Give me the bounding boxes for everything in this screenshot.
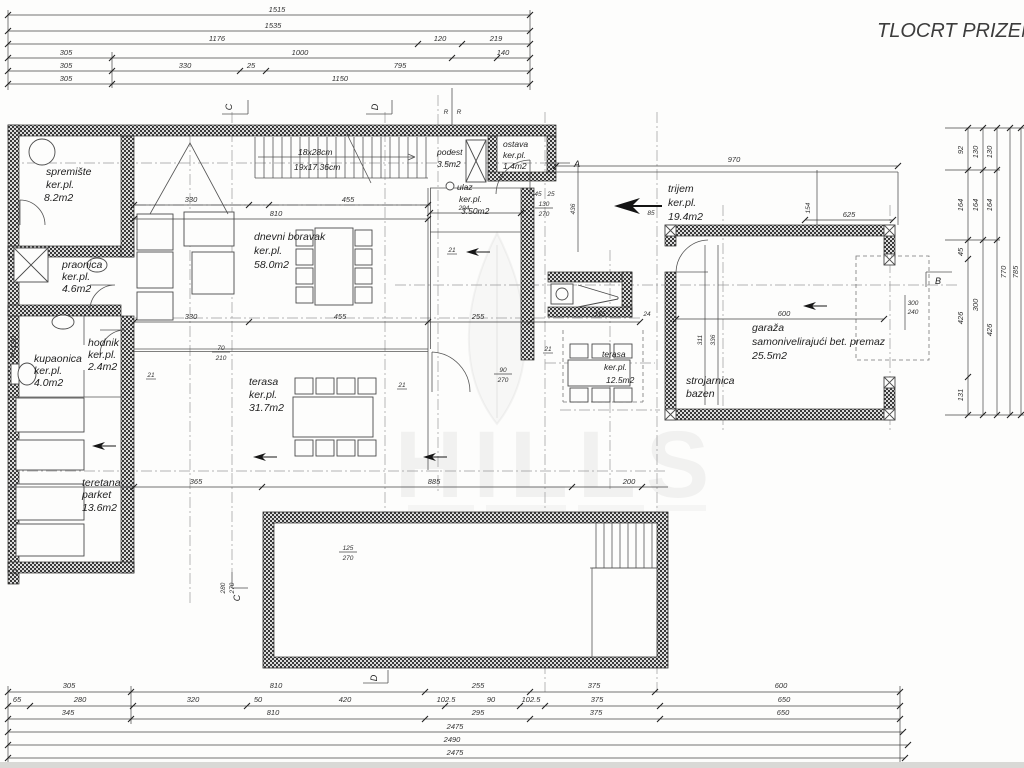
svg-text:trijem: trijem (668, 183, 694, 195)
svg-text:ostava: ostava (503, 139, 528, 149)
room-ostava: ostava ker.pl. 1.4m2 (503, 139, 528, 171)
section-marker-c-top: C (224, 103, 234, 110)
svg-text:hodnik: hodnik (88, 337, 120, 349)
dim-label: 280 (220, 582, 227, 594)
room-podest: podest 3.5m2 (436, 147, 463, 169)
svg-text:4.0m2: 4.0m2 (34, 377, 63, 389)
svg-text:25.5m2: 25.5m2 (751, 350, 787, 362)
svg-text:garaža: garaža (752, 322, 784, 334)
entrance-arrow-icon (614, 198, 662, 214)
dim-label: 24 (642, 311, 651, 318)
svg-text:kupaonica: kupaonica (34, 353, 82, 365)
dim-label: 25 (546, 191, 555, 198)
dim-label: 130 (985, 145, 994, 158)
svg-text:ker.pl.: ker.pl. (46, 179, 74, 191)
dim-label: 305 (60, 74, 73, 83)
svg-text:podest: podest (436, 147, 463, 157)
dim-label: 70 (217, 345, 225, 352)
dim-label: 164 (985, 199, 994, 212)
svg-text:dnevni boravak: dnevni boravak (254, 231, 326, 243)
dim-label: 21 (146, 372, 155, 379)
dim-label: 365 (190, 477, 203, 486)
dim-label: 305 (60, 61, 73, 70)
dim-label: 426 (985, 323, 994, 336)
dim-label: 270 (342, 555, 354, 562)
svg-text:ker.pl.: ker.pl. (254, 245, 282, 257)
dim-label: 300 (908, 300, 919, 307)
room-spremiste: spremište ker.pl. 8.2m2 (44, 166, 92, 204)
stairs-spec-line1: 18x28cm (298, 147, 333, 157)
dim-label: 255 (471, 312, 485, 321)
dim-label: 375 (588, 681, 601, 690)
dim-label: 330 (185, 312, 198, 321)
svg-text:ker.pl.: ker.pl. (604, 362, 627, 372)
door-arc-garaza (676, 240, 708, 272)
dim-label: 130 (971, 145, 980, 158)
dim-label: 300 (971, 298, 980, 311)
dim-label: 2475 (446, 748, 465, 757)
dim-label: 1176 (209, 34, 226, 43)
ridge-marker-right: R (457, 109, 462, 116)
svg-text:2.4m2: 2.4m2 (87, 361, 117, 373)
dim-label: 255 (471, 681, 485, 690)
ridge-marker-left: R (444, 109, 449, 116)
section-marker-a: A (573, 159, 580, 169)
svg-text:13.6m2: 13.6m2 (82, 502, 117, 514)
dim-label: 25 (246, 61, 256, 70)
svg-text:ker.pl.: ker.pl. (249, 389, 277, 401)
dim-label: 1000 (292, 48, 310, 57)
dim-label: 295 (471, 708, 485, 717)
parapet-marker: P=190 (9, 335, 18, 358)
podest-void-cross (466, 140, 486, 182)
dim-label: 885 (428, 477, 441, 486)
room-garaza: garaža samonivelirajući bet. premaz 25.5… (751, 322, 886, 362)
dim-label: 436 (570, 203, 577, 214)
dim-label: 102.5 (437, 695, 457, 704)
dim-label: 45 (534, 191, 542, 198)
watermark-tagline (408, 505, 706, 511)
terrace-table-set (293, 378, 376, 456)
section-marker-d-top: D (370, 103, 380, 110)
dim-label: 330 (179, 61, 192, 70)
dim-label: 375 (591, 695, 604, 704)
dim-label: 154 (805, 202, 812, 213)
dim-label: 345 (62, 708, 75, 717)
svg-text:praonica: praonica (61, 259, 102, 271)
dim-label: 330 (185, 195, 198, 204)
svg-text:4.6m2: 4.6m2 (62, 283, 91, 295)
dim-label: 140 (497, 48, 510, 57)
dim-label: 1150 (332, 74, 349, 83)
dim-label: 2490 (443, 735, 462, 744)
dim-label: 785 (1011, 265, 1020, 278)
dim-label: 426 (956, 311, 965, 324)
svg-text:ker.pl.: ker.pl. (459, 194, 482, 204)
dim-label: 130 (539, 201, 550, 208)
dim-label: 455 (334, 312, 347, 321)
dimension-chain-top: 1515 1535 1176 120 219 305 1000 140 305 … (5, 5, 533, 90)
dim-label: 1535 (265, 21, 283, 30)
washing-machine-icon (14, 248, 48, 282)
svg-text:terasa: terasa (602, 349, 626, 359)
svg-text:samonivelirajući bet. premaz: samonivelirajući bet. premaz (752, 336, 886, 348)
dim-label: 92 (956, 145, 965, 154)
svg-text:ker.pl.: ker.pl. (503, 150, 526, 160)
room-terasa-velika: terasa ker.pl. 31.7m2 (249, 376, 284, 414)
storage-tank-icon (29, 139, 55, 165)
svg-text:ker.pl.: ker.pl. (668, 197, 696, 209)
stairs-spec-line2: 19x17.36cm (294, 162, 340, 172)
dim-label: 810 (270, 681, 283, 690)
dim-label: 320 (187, 695, 200, 704)
dim-label: 650 (777, 708, 790, 717)
dimension-chain-right: 92 164 45 426 131 130 164 300 130 164 42… (945, 125, 1024, 418)
dim-label: 294 (458, 205, 470, 212)
dim-label: 90 (499, 367, 507, 374)
room-praonica: praonica ker.pl. 4.6m2 (61, 259, 102, 295)
svg-text:terasa: terasa (249, 376, 278, 388)
room-hodnik: hodnik ker.pl. 2.4m2 (87, 337, 120, 373)
dim-label: 210 (215, 355, 227, 362)
outdoor-kitchen-counter (551, 284, 618, 307)
dim-label: 270 (497, 377, 509, 384)
dim-label: 305 (63, 681, 76, 690)
page-title: TLOCRT PRIZEMLJA (877, 20, 1024, 42)
svg-text:31.7m2: 31.7m2 (249, 402, 284, 414)
dim-label: 90 (487, 695, 496, 704)
dim-label: 240 (907, 309, 919, 316)
svg-text:ulaz: ulaz (457, 182, 473, 192)
pool (263, 512, 668, 668)
room-strojarnica: strojarnica bazen (686, 375, 735, 400)
svg-text:8.2m2: 8.2m2 (44, 192, 73, 204)
dim-label: 164 (971, 199, 980, 212)
dim-label: 600 (775, 681, 788, 690)
dimension-chain-bottom: 305 810 255 375 600 65 280 320 50 420 10… (5, 681, 911, 762)
gym-equipment (16, 398, 84, 556)
dim-label: 50 (254, 695, 263, 704)
dim-label: 280 (73, 695, 87, 704)
room-trijem: trijem ker.pl. 19.4m2 (668, 183, 703, 223)
svg-text:teretana: teretana (82, 477, 121, 489)
staircase: 18x28cm 19x17.36cm (255, 132, 428, 183)
dim-label: 375 (590, 708, 603, 717)
dim-label: 200 (622, 477, 636, 486)
svg-text:ker.pl.: ker.pl. (34, 365, 62, 377)
dim-label: 795 (394, 61, 407, 70)
svg-text:ker.pl.: ker.pl. (62, 271, 90, 283)
svg-text:strojarnica: strojarnica (686, 375, 735, 387)
dim-label: 625 (843, 210, 856, 219)
dim-label: 455 (342, 195, 355, 204)
dim-label: 270 (538, 211, 550, 218)
dim-label: 810 (270, 209, 283, 218)
dim-label: 102.5 (522, 695, 542, 704)
dim-label: 120 (434, 34, 447, 43)
dim-label: 2475 (446, 722, 465, 731)
watermark-brand: HILLS (395, 412, 719, 518)
svg-text:ker.pl.: ker.pl. (88, 349, 116, 361)
svg-text:12.5m2: 12.5m2 (606, 375, 635, 385)
svg-text:1.4m2: 1.4m2 (503, 161, 527, 171)
scan-edge (0, 762, 1024, 768)
dim-label: 164 (956, 199, 965, 212)
section-marker-b: B (935, 276, 941, 286)
bathroom-sink-icon (52, 315, 74, 329)
section-marker-d-bottom: D (369, 674, 379, 681)
dim-label: 600 (778, 309, 791, 318)
dim-label: 175 (595, 311, 606, 318)
dim-label: 21 (447, 247, 456, 254)
dim-label: 65 (13, 695, 22, 704)
room-teretana: teretana parket 13.6m2 (81, 477, 121, 514)
door-arc-spremiste (20, 200, 45, 225)
dim-label: 85 (647, 210, 655, 217)
svg-text:3.5m2: 3.5m2 (437, 159, 461, 169)
dim-label: 970 (728, 155, 741, 164)
floor-plan-sheet: HILLS TLOCRT PRIZEMLJA (0, 0, 1024, 768)
dim-label: 810 (267, 708, 280, 717)
svg-text:19.4m2: 19.4m2 (668, 211, 703, 223)
dim-label: 131 (956, 389, 965, 402)
dim-label: 311 (697, 334, 704, 345)
dim-label: 270 (229, 582, 236, 594)
dim-label: 305 (60, 48, 73, 57)
dim-label: 336 (710, 334, 717, 345)
toilet-icon (11, 363, 36, 385)
section-marker-c-bottom: C (232, 594, 242, 601)
svg-text:bazen: bazen (686, 388, 715, 400)
dim-label: 420 (339, 695, 352, 704)
dim-label: 650 (778, 695, 791, 704)
svg-text:58.0m2: 58.0m2 (254, 259, 289, 271)
dim-label: 125 (343, 545, 354, 552)
dim-label: 21 (543, 346, 552, 353)
dim-label: 21 (12, 568, 19, 577)
floor-plan-drawing: HILLS TLOCRT PRIZEMLJA (0, 0, 1024, 768)
dim-label: 219 (489, 34, 503, 43)
dim-label: 1515 (269, 5, 287, 14)
dim-label: 770 (999, 265, 1008, 278)
dim-label: 45 (956, 247, 965, 256)
doorbell-icon (446, 182, 454, 190)
svg-text:spremište: spremište (46, 166, 92, 178)
dim-label: 21 (397, 382, 406, 389)
svg-text:parket: parket (81, 489, 112, 501)
living-room-sofa (137, 212, 234, 320)
room-kupaonica: kupaonica ker.pl. 4.0m2 (34, 353, 82, 389)
